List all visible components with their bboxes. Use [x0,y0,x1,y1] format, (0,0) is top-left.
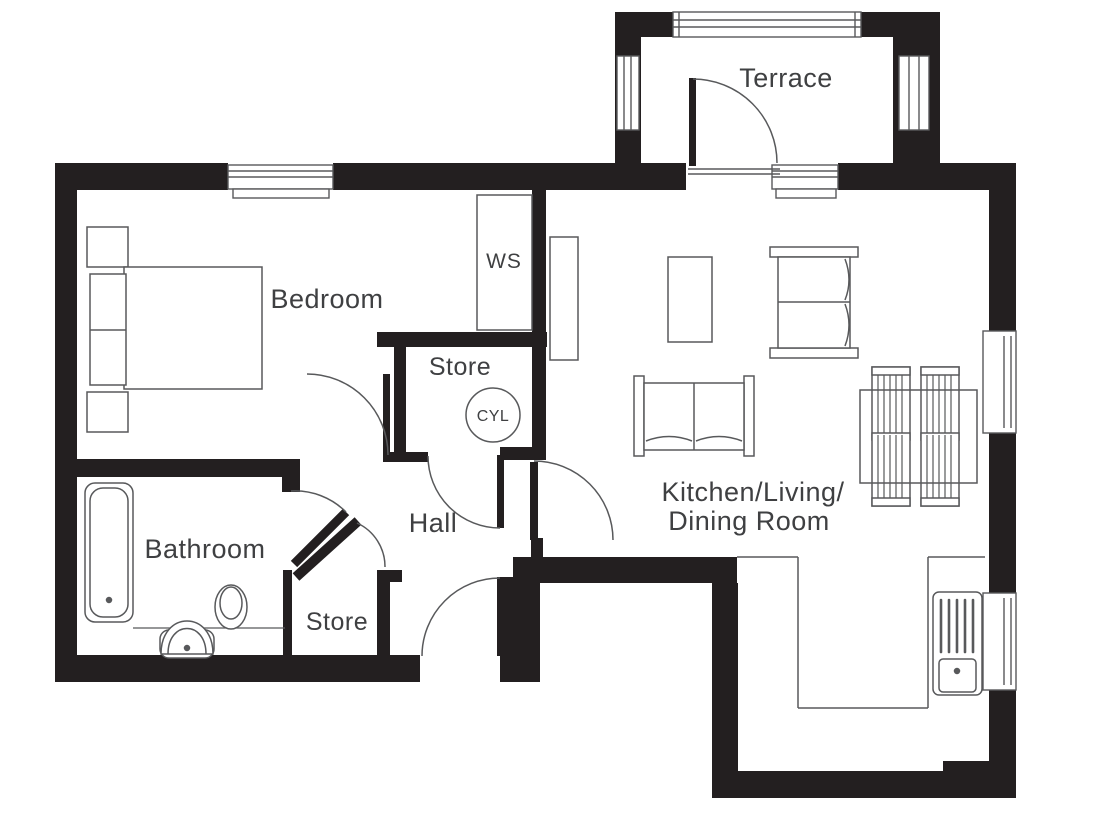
sofa-right-arm-top [770,247,858,257]
living-top-window-sill [776,189,836,198]
bed [124,267,262,389]
coffee-table [668,257,712,342]
front-door-leaf [497,577,503,656]
store-upper-left-wall [394,347,406,452]
hall-label: Hall [409,508,458,538]
terrace-label: Terrace [739,63,833,93]
sofa-right-arm-bottom [770,348,858,358]
nightstand-bottom [87,392,128,432]
store-upper-top-wall [377,332,547,347]
left-wall [55,163,77,682]
kitchen-door-leaf [530,462,538,540]
kitchen-bottom-step [943,761,989,773]
kitchen-lower-left-wall [712,583,738,798]
terrace-top-right-block [861,12,940,37]
sofa-bottom-arm-left [634,376,644,456]
basin-tap [185,646,190,651]
bathroom-door-arc [291,491,346,512]
dining-chair [921,433,959,506]
right-wall-lower [989,689,1016,798]
dining-chair [921,367,959,440]
terrace-railing [673,12,861,37]
bathroom-label: Bathroom [144,534,265,564]
hall-kitchen-wall [532,190,546,460]
top-wall-left [55,163,228,190]
wardrobe-label: WS [486,250,522,273]
bedroom-window-sill [233,189,329,198]
store-lower-right-wall [377,570,390,657]
right-wall-mid [989,432,1016,594]
nightstand-top [87,227,128,267]
bedroom-label: Bedroom [270,284,383,314]
bottom-wall-left [55,655,420,682]
front-door-arc [422,578,500,656]
kitchen-door-arc [534,461,613,540]
sofa-bottom-arm-right [744,376,754,456]
terrace-left-window [617,56,639,130]
kitchen-door-stub [531,538,543,560]
store-lower-left-wall [283,570,292,657]
floor-plan-drawing: Terrace Bedroom WS Store CYL Hall Bathro… [0,0,1097,822]
kitchen-sink-tap [955,669,960,674]
top-wall-mid [333,163,686,190]
kitchen-sink-bowl [939,659,976,692]
hall-kitchen-bottom-wall [513,557,737,583]
cylinder-label: CYL [477,408,510,425]
bathroom-door-arc-small [357,523,385,567]
bedroom-door-arc [307,374,388,455]
bedroom-bathroom-wall [77,459,300,477]
dining-chair [872,367,910,440]
floor-plan-page: Terrace Bedroom WS Store CYL Hall Bathro… [0,0,1097,822]
kitchen-label-line2: Dining Room [668,506,830,536]
store-upper-door-leaf [497,455,504,528]
kitchen-label-line1: Kitchen/Living/ [661,477,844,507]
terrace-door-leaf [689,78,696,166]
bathroom-corner-stub [282,477,300,492]
terrace-top-left-block [615,12,673,37]
store-lower-right-foot [377,570,402,582]
tall-unit [550,237,578,360]
bathtub-drain [107,598,112,603]
dining-chair [872,433,910,506]
kitchen-bottom-wall [712,771,1016,798]
right-wall-upper [989,163,1016,332]
terrace-right-window [899,56,929,130]
store-upper-label: Store [429,353,491,381]
front-door-side-wall [500,577,540,682]
store-lower-label: Store [306,608,368,636]
